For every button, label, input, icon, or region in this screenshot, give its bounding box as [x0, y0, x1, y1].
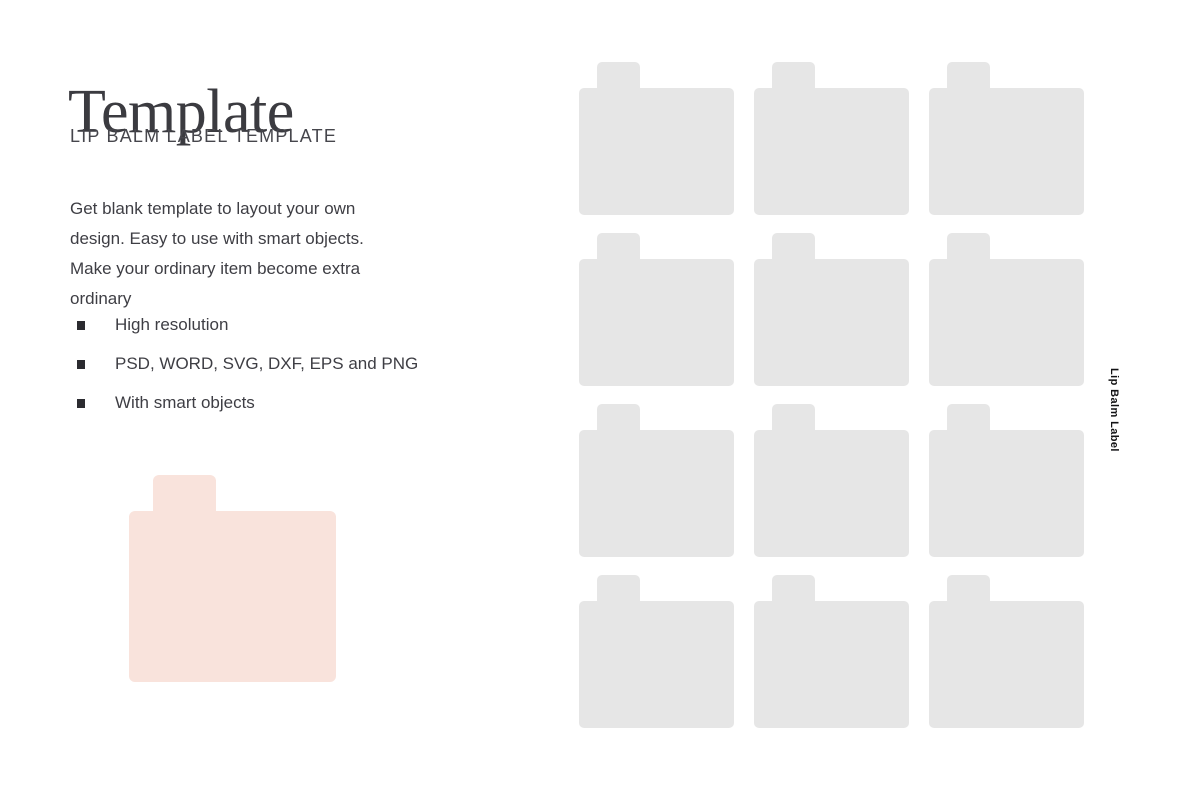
blank-label-body	[579, 259, 734, 386]
blank-label-body	[754, 88, 909, 215]
feature-item: High resolution	[70, 314, 418, 353]
label-grid	[579, 62, 1084, 728]
feature-item-label: With smart objects	[115, 392, 255, 414]
blank-label-shape	[929, 233, 1084, 386]
blank-label-shape	[929, 62, 1084, 215]
feature-item-label: High resolution	[115, 314, 228, 336]
blank-label-shape	[754, 62, 909, 215]
blank-label-shape	[929, 575, 1084, 728]
blank-label-shape	[754, 233, 909, 386]
blank-label-body	[754, 430, 909, 557]
page-subtitle: LIP BALM LABEL TEMPLATE	[70, 126, 337, 147]
blank-label-shape	[579, 404, 734, 557]
blank-label-shape	[579, 62, 734, 215]
feature-item-label: PSD, WORD, SVG, DXF, EPS and PNG	[115, 353, 418, 375]
blank-label-shape	[929, 404, 1084, 557]
blank-label-body	[929, 259, 1084, 386]
blank-label-body	[754, 259, 909, 386]
blank-label-body	[579, 430, 734, 557]
blank-label-body	[929, 430, 1084, 557]
feature-item: PSD, WORD, SVG, DXF, EPS and PNG	[70, 353, 418, 392]
blank-label-body	[929, 88, 1084, 215]
blank-label-body	[754, 601, 909, 728]
feature-list: High resolution PSD, WORD, SVG, DXF, EPS…	[70, 314, 418, 431]
page-description: Get blank template to layout your own de…	[70, 194, 408, 314]
blank-label-shape	[579, 575, 734, 728]
blank-label-shape	[754, 575, 909, 728]
pink-label-shape	[129, 475, 336, 682]
pink-label-body	[129, 511, 336, 682]
blank-label-body	[929, 601, 1084, 728]
bullet-square-icon	[77, 399, 85, 408]
bullet-square-icon	[77, 360, 85, 369]
blank-label-body	[579, 88, 734, 215]
blank-label-shape	[754, 404, 909, 557]
bullet-square-icon	[77, 321, 85, 330]
feature-item: With smart objects	[70, 392, 418, 431]
blank-label-body	[579, 601, 734, 728]
template-preview-page: Template LIP BALM LABEL TEMPLATE Get bla…	[0, 0, 1200, 800]
blank-label-shape	[579, 233, 734, 386]
vertical-side-label: Lip Balm Label	[1108, 368, 1120, 452]
